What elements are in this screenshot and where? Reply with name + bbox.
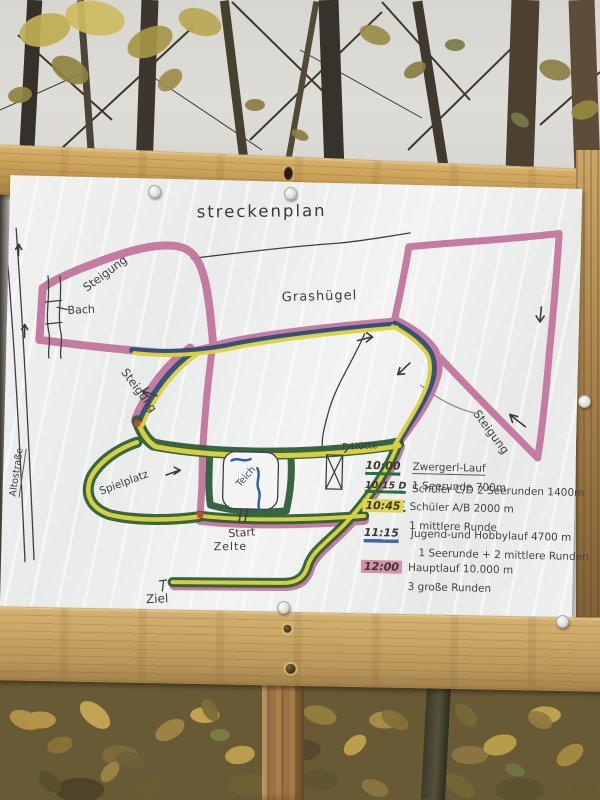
legend-time: 10:45: [362, 499, 403, 513]
legend-time: 12:00: [361, 560, 402, 574]
push-pin: [556, 615, 569, 628]
legend-time: 10:15 D: [365, 481, 407, 491]
screw: [283, 625, 291, 633]
legend-race-title: Jugend-und Hobbylauf 4700 m: [411, 528, 572, 544]
push-pin: [284, 187, 297, 200]
bottom-wood-beam: [0, 606, 600, 692]
push-pin: [277, 601, 290, 614]
legend-race-detail: 3 große Runden: [407, 581, 491, 595]
push-pin: [148, 185, 161, 198]
push-pin: [578, 395, 591, 408]
photo-of-course-sign: streckenplan Steigung Bach Grashügel Ste…: [0, 0, 600, 800]
legend-row-hauptlauf: 12:00 Hauptlauf 10.000 m 3 große Runden: [360, 555, 513, 597]
support-post: [262, 680, 304, 800]
course-map-sheet: streckenplan Steigung Bach Grashügel Ste…: [0, 175, 582, 627]
screw: [286, 664, 296, 674]
legend-race-title: Schüler A/B 2000 m: [409, 501, 514, 516]
legend-time: 11:15: [364, 526, 399, 540]
legend: 10:00 Zwergerl-Lauf 1 Seerunde 700m 10:1…: [0, 175, 582, 627]
legend-time: 10:00: [365, 459, 400, 473]
legend-race-title: Hauptlauf 10.000 m: [408, 562, 513, 577]
